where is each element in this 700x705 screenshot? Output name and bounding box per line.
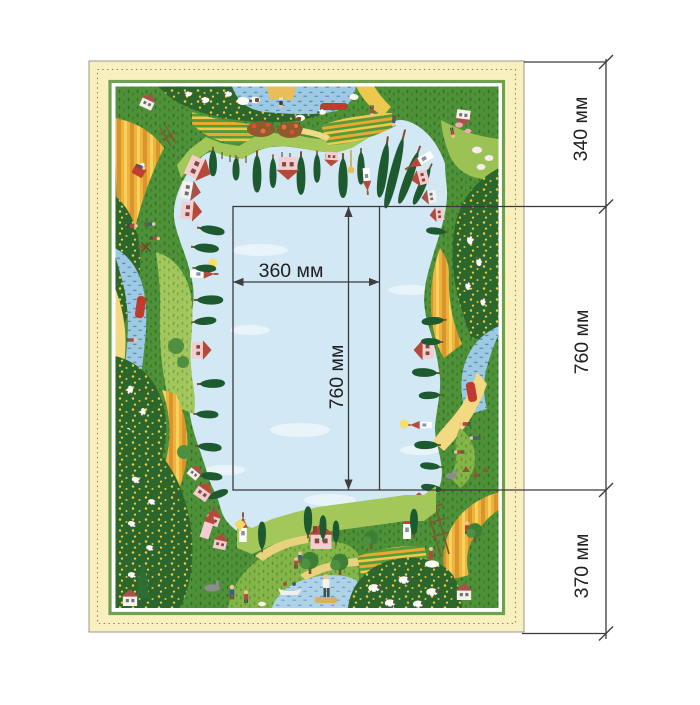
svg-text:340 мм: 340 мм <box>570 97 592 162</box>
svg-text:360 мм: 360 мм <box>259 260 324 282</box>
svg-text:760 мм: 760 мм <box>326 345 348 410</box>
svg-text:760 мм: 760 мм <box>571 310 593 375</box>
svg-text:370 мм: 370 мм <box>571 534 593 599</box>
